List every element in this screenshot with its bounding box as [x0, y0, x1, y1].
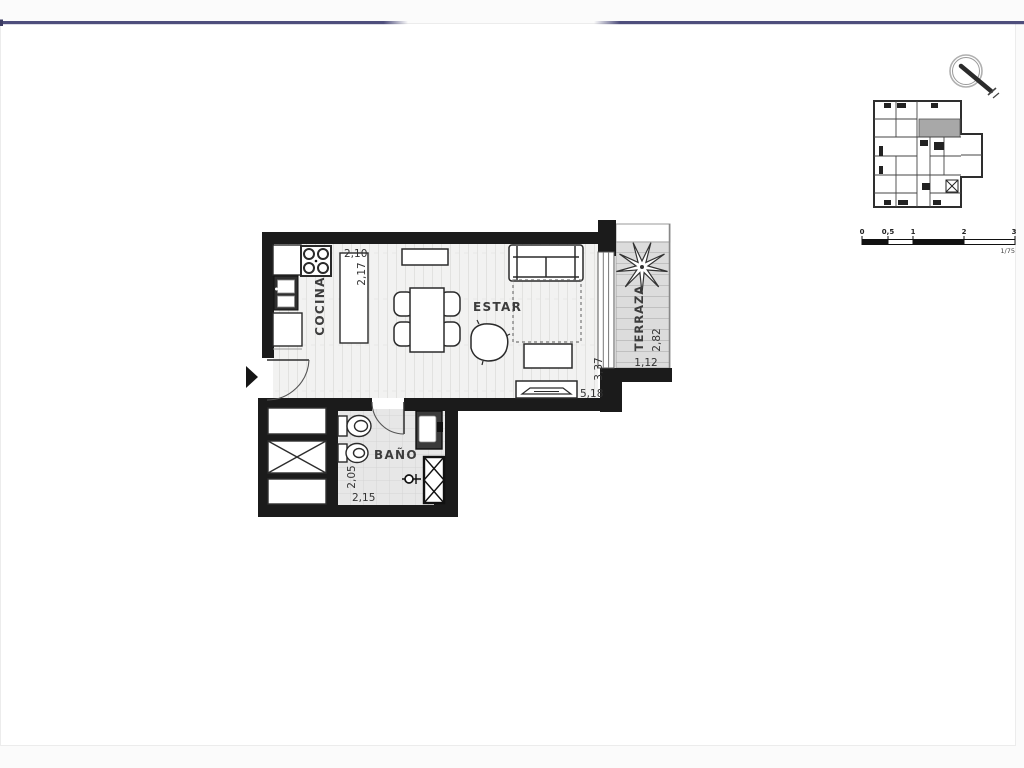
terraza-dim-depth: 2,82 [651, 328, 663, 351]
cocina-label: COCINA [313, 276, 327, 335]
terraza-label: TERRAZA [632, 285, 646, 352]
estar-dim-width: 5,18 [580, 388, 603, 400]
highlighted-unit [919, 119, 960, 137]
cocina-dim-width: 2,10 [344, 248, 367, 260]
key-plan-shaft [946, 180, 958, 192]
cocina-dim-depth: 2,17 [356, 262, 368, 285]
sink-icon [274, 276, 298, 310]
toilet-icon [338, 416, 371, 437]
side-table [524, 344, 572, 368]
sofa-icon [509, 245, 583, 281]
terraza-dim-width: 1,12 [634, 357, 657, 369]
bano-dim-depth: 2,05 [346, 465, 358, 488]
estar-label: ESTAR [473, 300, 522, 314]
service-boxes [268, 408, 326, 504]
terrace-window [598, 252, 614, 368]
scale-tick-2: 2 [962, 228, 967, 236]
tv-unit [516, 381, 577, 398]
scale-tick-0: 0 [860, 228, 865, 236]
planter [616, 224, 670, 242]
shelf [402, 249, 448, 265]
lower-cabinet [273, 313, 302, 346]
floor-plan-drawing: TERRAZA 2,82 1,12 [0, 0, 1024, 768]
counter [273, 245, 301, 275]
plant-center [640, 265, 644, 269]
bidet-icon [338, 444, 368, 463]
scale-tick-05: 0,5 [882, 228, 895, 236]
scale-tick-1: 1 [911, 228, 916, 236]
dining-table [410, 288, 444, 352]
estar-dim-depth: 3,37 [593, 357, 605, 380]
bano-label: BAÑO [374, 447, 418, 462]
scale-ratio: 1/75 [1000, 247, 1015, 255]
scale-tick-3: 3 [1012, 228, 1017, 236]
floor-plan-page: TERRAZA 2,82 1,12 [0, 0, 1024, 768]
stove-icon [301, 246, 331, 276]
vanity-sink-icon [416, 411, 443, 449]
terrace: TERRAZA 2,82 1,12 [616, 224, 670, 369]
armchair-icon [471, 324, 508, 361]
bano-dim-width: 2,15 [352, 492, 375, 504]
kitchen: COCINA 2,10 2,17 [273, 245, 368, 349]
